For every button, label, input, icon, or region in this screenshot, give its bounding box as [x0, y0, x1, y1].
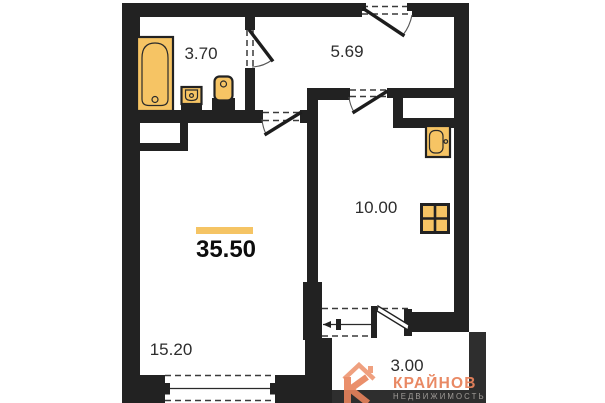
living-room-door	[262, 113, 302, 135]
entry-door	[357, 3, 416, 35]
kitchen-sink-fixture	[426, 126, 450, 157]
bathroom-door	[247, 30, 272, 68]
floor-plan: 3.70 5.69 10.00 15.20 3.00 35.50 КРАЙНОВ…	[0, 0, 605, 403]
kitchen-door	[349, 90, 387, 112]
kitchen-area-label: 10.00	[355, 198, 398, 218]
stove-fixture	[421, 204, 449, 233]
hallway-area-label: 5.69	[330, 42, 363, 62]
bathroom-area-label: 3.70	[184, 44, 217, 64]
living-room-area-label: 15.20	[150, 340, 193, 360]
brand-logo-icon	[342, 362, 384, 403]
balcony-area-label: 3.00	[390, 356, 423, 376]
living-room-window	[162, 376, 278, 401]
washbasin-fixture	[181, 87, 202, 110]
balcony-door	[371, 306, 412, 338]
plan-annotations	[0, 0, 605, 403]
brand-name: КРАЙНОВ	[393, 375, 477, 393]
toilet-fixture	[212, 77, 235, 111]
total-area-label: 35.50	[196, 236, 256, 264]
bathtub-fixture	[137, 37, 173, 111]
total-area-accent-bar	[196, 227, 253, 234]
brand-subtitle: НЕДВИЖИМОСТЬ	[393, 392, 486, 401]
